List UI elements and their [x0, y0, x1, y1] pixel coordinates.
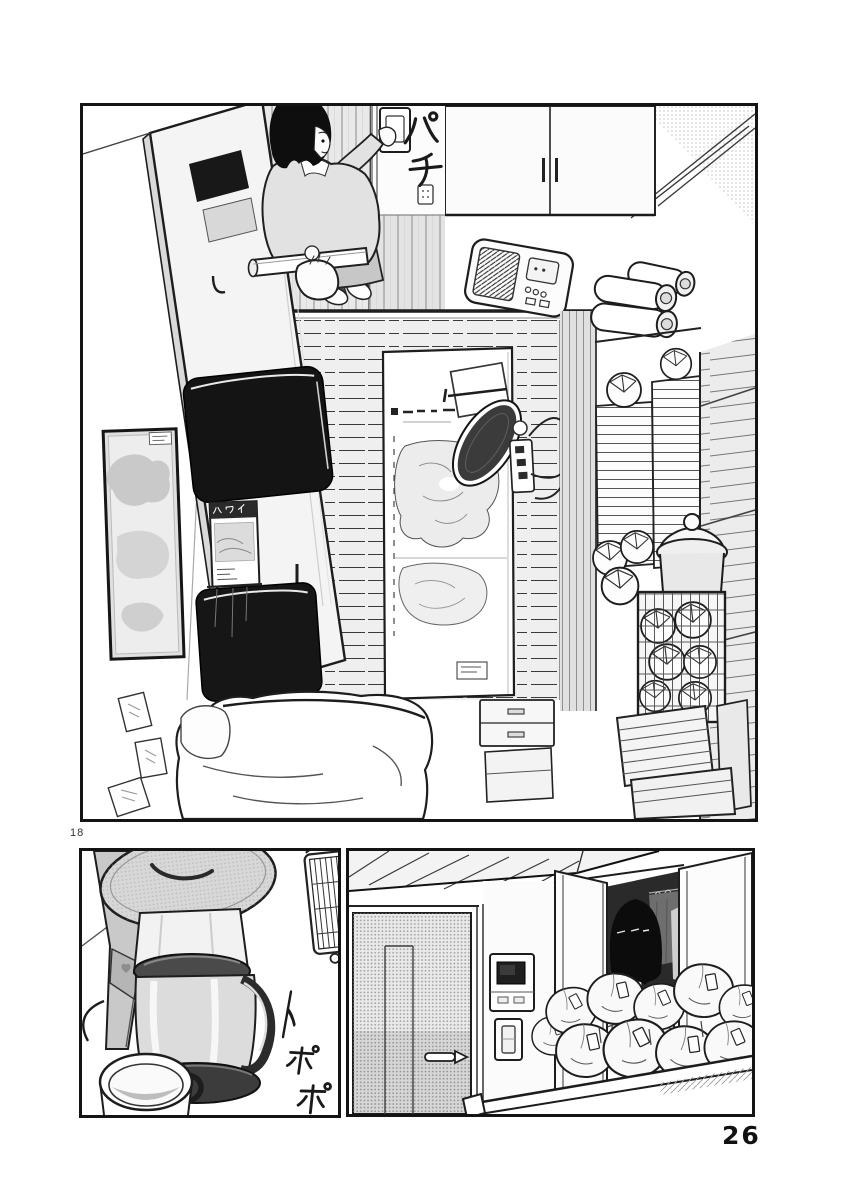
page-number: 26 [722, 1121, 761, 1150]
hall-light-switch [495, 1019, 522, 1060]
black-case-bottom [195, 582, 323, 702]
bed [177, 692, 433, 819]
coffee-maker-scene [82, 851, 338, 1115]
paper-crate [638, 592, 725, 722]
paper-ball [607, 373, 641, 407]
kitchen-cabinets [445, 106, 655, 215]
hallway-door [349, 904, 483, 1114]
leaf-number: 18 [70, 827, 84, 839]
door-handle [425, 1053, 455, 1061]
flat-box-stacks [617, 700, 751, 819]
intercom-panel [490, 954, 534, 1011]
plank-wall-strip [560, 311, 596, 711]
manga-page: パチ ハワイ [0, 0, 850, 1200]
tote-bag [296, 260, 338, 299]
hallway-scene [349, 851, 752, 1114]
hawaii-guidebook [210, 501, 260, 587]
panel-coffee-maker: トポポ [79, 848, 341, 1118]
panel-room-overhead: パチ ハワイ [80, 103, 758, 822]
wall-map-poster [103, 429, 184, 659]
room-overhead-scene [83, 106, 755, 819]
paper-ball [661, 349, 692, 380]
small-drawers [480, 700, 554, 802]
black-case-top [182, 365, 334, 504]
wall-outlet [418, 185, 433, 204]
panel-hallway-closet [346, 848, 755, 1117]
pillow [181, 706, 230, 759]
